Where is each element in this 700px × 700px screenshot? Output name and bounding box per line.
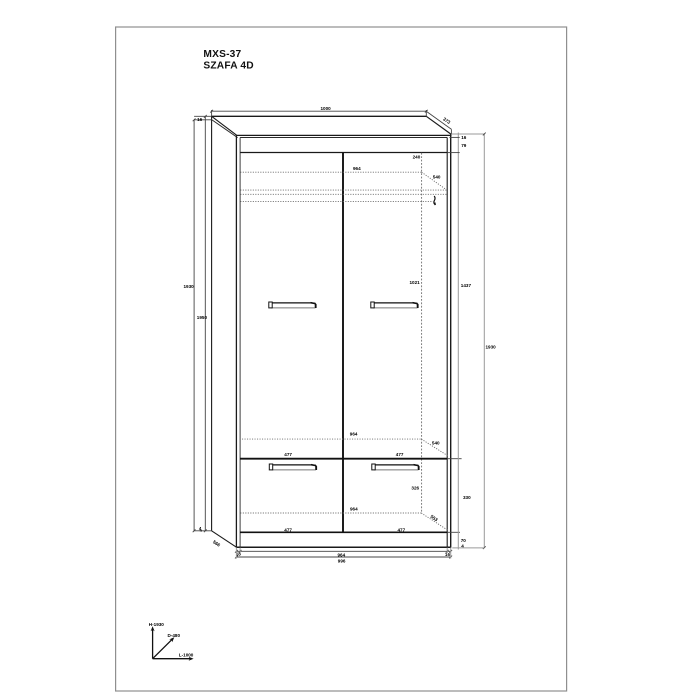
svg-text:964: 964	[353, 166, 361, 171]
svg-text:1437: 1437	[461, 283, 472, 288]
svg-text:330: 330	[463, 495, 471, 500]
svg-text:4: 4	[199, 526, 202, 531]
svg-text:D-480: D-480	[168, 633, 181, 638]
svg-text:1930: 1930	[184, 284, 195, 289]
svg-text:477: 477	[396, 452, 404, 457]
svg-text:MXS-37: MXS-37	[203, 49, 241, 60]
svg-text:70: 70	[461, 538, 467, 543]
svg-text:1000: 1000	[321, 106, 332, 111]
svg-text:16: 16	[197, 117, 203, 122]
svg-text:540: 540	[432, 441, 440, 446]
svg-text:1930: 1930	[486, 344, 497, 349]
svg-text:79: 79	[461, 143, 467, 148]
svg-text:SZAFA 4D: SZAFA 4D	[203, 61, 253, 72]
svg-text:477: 477	[284, 452, 292, 457]
svg-text:16: 16	[461, 135, 467, 140]
svg-text:4: 4	[461, 544, 464, 549]
svg-text:964: 964	[350, 431, 358, 436]
svg-text:326: 326	[411, 485, 419, 490]
svg-text:996: 996	[338, 559, 346, 564]
svg-text:L-1000: L-1000	[179, 653, 194, 658]
svg-text:1021: 1021	[410, 280, 421, 285]
svg-text:540: 540	[433, 174, 441, 179]
svg-text:H-1930: H-1930	[149, 622, 165, 627]
svg-text:240: 240	[413, 155, 421, 160]
svg-text:1950: 1950	[197, 315, 208, 320]
svg-text:964: 964	[350, 506, 358, 511]
